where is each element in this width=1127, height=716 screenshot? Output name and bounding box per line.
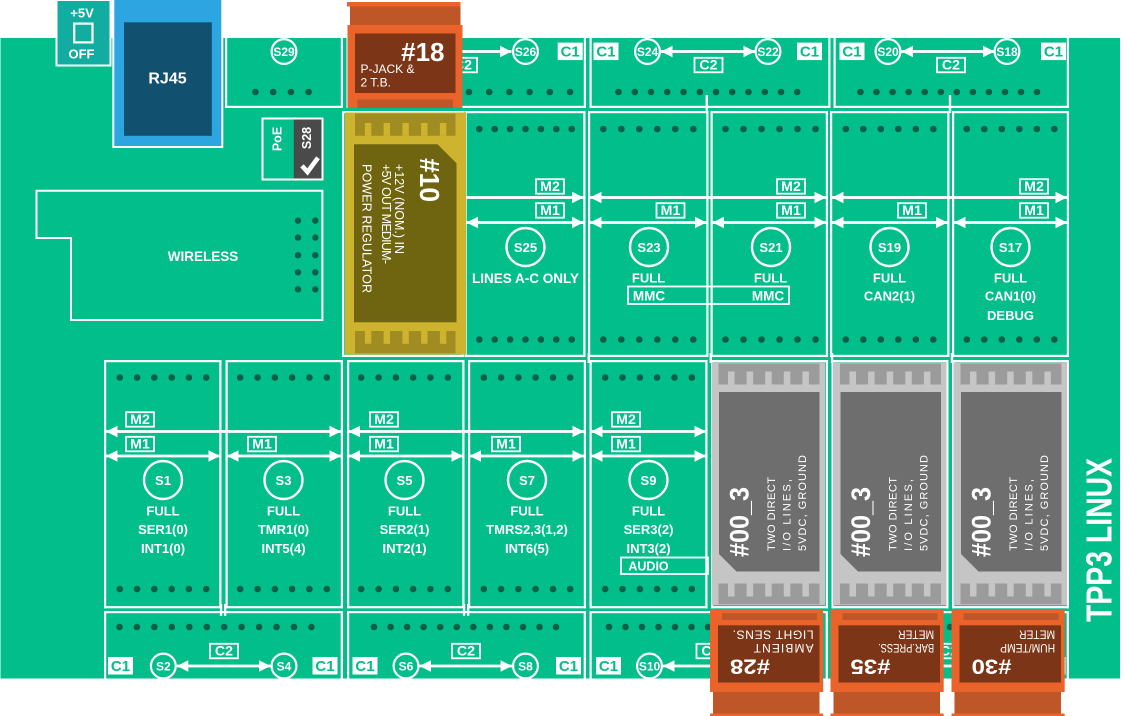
svg-text:M1: M1: [540, 203, 560, 219]
svg-text:#28: #28: [730, 654, 770, 677]
svg-text:TMR1(0): TMR1(0): [258, 522, 309, 537]
svg-text:#35: #35: [850, 654, 890, 677]
svg-text:P-JACK &: P-JACK &: [361, 62, 415, 76]
svg-text:TWO DIRECT: TWO DIRECT: [888, 477, 900, 551]
svg-text:#00_3: #00_3: [725, 487, 755, 557]
svg-text:INT3(2): INT3(2): [626, 541, 670, 556]
svg-text:FULL: FULL: [146, 504, 179, 519]
svg-text:M1: M1: [661, 203, 681, 219]
svg-text:S20: S20: [877, 45, 899, 59]
svg-text:C1: C1: [559, 658, 578, 675]
svg-text:M2: M2: [781, 179, 801, 195]
svg-text:INT1(0): INT1(0): [141, 541, 185, 556]
svg-text:POWER REGULATOR: POWER REGULATOR: [360, 164, 374, 293]
svg-text:S17: S17: [999, 240, 1022, 255]
svg-text:+5V: +5V: [70, 6, 94, 21]
svg-text:C1: C1: [842, 43, 861, 60]
svg-text:TPP3 LINUX: TPP3 LINUX: [1079, 458, 1120, 622]
svg-text:2 T.B.: 2 T.B.: [361, 75, 391, 89]
svg-text:+12V (NOM.) IN: +12V (NOM.) IN: [392, 164, 406, 254]
svg-text:S4: S4: [277, 660, 292, 674]
svg-text:WIRELESS: WIRELESS: [168, 249, 239, 264]
svg-text:S7: S7: [519, 473, 535, 488]
svg-text:C2: C2: [699, 58, 717, 74]
svg-text:TMRS2,3(1,2): TMRS2,3(1,2): [486, 522, 568, 537]
svg-text:INT5(4): INT5(4): [261, 541, 305, 556]
svg-text:RJ45: RJ45: [148, 70, 186, 87]
svg-text:S10: S10: [639, 660, 661, 674]
svg-text:LINES A-C ONLY: LINES A-C ONLY: [472, 271, 579, 286]
svg-text:METER: METER: [1019, 628, 1055, 642]
svg-text:FULL: FULL: [632, 271, 665, 286]
svg-text:CAN1(0): CAN1(0): [985, 289, 1036, 304]
svg-text:5VDC, GROUND: 5VDC, GROUND: [797, 455, 809, 551]
svg-text:+5V OUT MEDIUM-: +5V OUT MEDIUM-: [379, 164, 393, 264]
svg-text:C1: C1: [315, 658, 334, 675]
svg-text:FULL: FULL: [754, 271, 787, 286]
svg-text:C1: C1: [111, 658, 130, 675]
svg-text:#00_3: #00_3: [846, 487, 876, 557]
svg-text:M1: M1: [252, 437, 272, 453]
svg-text:S2: S2: [156, 660, 171, 674]
svg-text:FULL: FULL: [388, 504, 421, 519]
svg-text:S8: S8: [518, 660, 533, 674]
svg-text:S26: S26: [515, 45, 537, 59]
svg-text:FULL: FULL: [510, 504, 543, 519]
svg-text:C1: C1: [355, 658, 374, 675]
svg-text:S22: S22: [757, 45, 779, 59]
svg-text:M1: M1: [902, 203, 922, 219]
svg-text:M2: M2: [374, 412, 394, 428]
svg-text:FULL: FULL: [267, 504, 300, 519]
svg-text:S6: S6: [399, 660, 414, 674]
svg-text:FULL: FULL: [994, 271, 1027, 286]
svg-text:C2: C2: [215, 644, 233, 660]
svg-text:M1: M1: [781, 203, 801, 219]
svg-text:S1: S1: [155, 473, 171, 488]
svg-text:PoE: PoE: [271, 127, 285, 151]
svg-text:C2: C2: [942, 58, 960, 74]
svg-text:M2: M2: [130, 412, 150, 428]
svg-text:C1: C1: [800, 43, 819, 60]
svg-text:MMC: MMC: [752, 289, 784, 304]
svg-text:S3: S3: [276, 473, 292, 488]
svg-text:I/O LINES,: I/O LINES,: [903, 479, 915, 551]
svg-text:S23: S23: [637, 240, 660, 255]
svg-text:C1: C1: [1044, 43, 1063, 60]
svg-text:S29: S29: [273, 45, 295, 59]
svg-text:5VDC, GROUND: 5VDC, GROUND: [1039, 455, 1051, 551]
svg-text:S25: S25: [514, 240, 537, 255]
svg-text:S21: S21: [759, 240, 782, 255]
svg-text:#10: #10: [414, 158, 445, 202]
svg-text:I/O LINES,: I/O LINES,: [1024, 479, 1036, 551]
svg-text:FULL: FULL: [873, 271, 906, 286]
svg-text:METER: METER: [898, 628, 934, 642]
svg-text:BAR.PRESS.: BAR.PRESS.: [878, 641, 934, 655]
svg-text:C1: C1: [561, 43, 580, 60]
svg-text:#30: #30: [972, 654, 1012, 677]
svg-text:M1: M1: [496, 437, 516, 453]
svg-text:SER3(2): SER3(2): [624, 522, 674, 537]
svg-text:M1: M1: [616, 437, 636, 453]
svg-text:S24: S24: [637, 45, 659, 59]
svg-text:MMC: MMC: [633, 289, 665, 304]
svg-text:OFF: OFF: [69, 46, 95, 61]
svg-text:S28: S28: [300, 127, 314, 149]
svg-text:AMBIENT: AMBIENT: [753, 641, 814, 655]
svg-text:C2: C2: [457, 644, 475, 660]
svg-text:AUDIO: AUDIO: [628, 560, 669, 574]
svg-text:S19: S19: [878, 240, 901, 255]
svg-text:SER1(0): SER1(0): [138, 522, 188, 537]
svg-text:#00_3: #00_3: [967, 487, 997, 557]
svg-text:C1: C1: [599, 658, 618, 675]
svg-text:INT6(5): INT6(5): [505, 541, 549, 556]
svg-text:C1: C1: [596, 43, 615, 60]
svg-text:M2: M2: [540, 179, 560, 195]
svg-text:M1: M1: [374, 437, 394, 453]
svg-text:TWO DIRECT: TWO DIRECT: [1008, 477, 1020, 551]
svg-text:TWO DIRECT: TWO DIRECT: [766, 477, 778, 551]
svg-text:LIGHT SENS.: LIGHT SENS.: [733, 628, 814, 642]
svg-text:S18: S18: [996, 45, 1018, 59]
svg-text:M2: M2: [616, 412, 636, 428]
svg-text:INT2(1): INT2(1): [382, 541, 426, 556]
svg-text:M2: M2: [1024, 179, 1044, 195]
svg-text:M1: M1: [130, 437, 150, 453]
svg-text:DEBUG: DEBUG: [987, 308, 1034, 323]
svg-text:SER2(1): SER2(1): [380, 522, 430, 537]
svg-text:S9: S9: [641, 473, 657, 488]
svg-text:5VDC, GROUND: 5VDC, GROUND: [919, 455, 931, 551]
svg-text:CAN2(1): CAN2(1): [864, 289, 915, 304]
svg-text:M1: M1: [1024, 203, 1044, 219]
svg-text:I/O LINES,: I/O LINES,: [782, 479, 794, 551]
svg-text:FULL: FULL: [632, 504, 665, 519]
svg-text:HUM/TEMP: HUM/TEMP: [1000, 641, 1055, 655]
svg-text:S5: S5: [397, 473, 413, 488]
